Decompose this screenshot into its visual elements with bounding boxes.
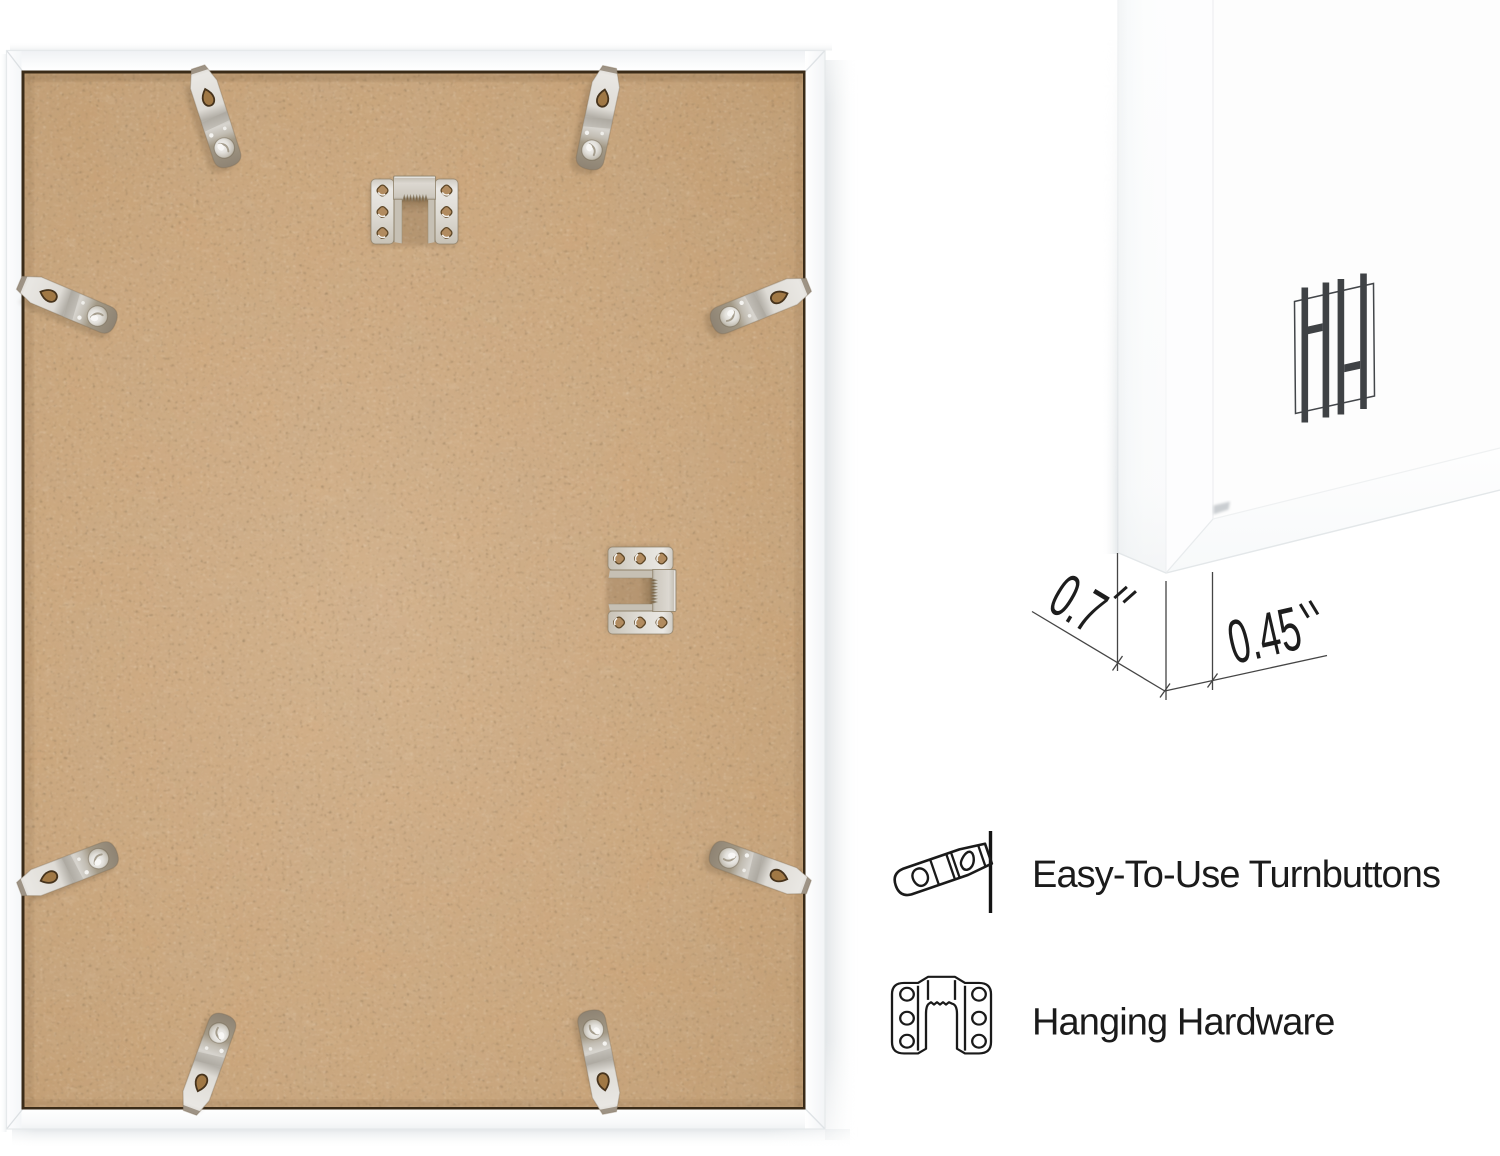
svg-text:Hanging Hardware: Hanging Hardware xyxy=(1032,1002,1334,1044)
svg-text:Easy-To-Use Turnbuttons: Easy-To-Use Turnbuttons xyxy=(1032,854,1440,896)
